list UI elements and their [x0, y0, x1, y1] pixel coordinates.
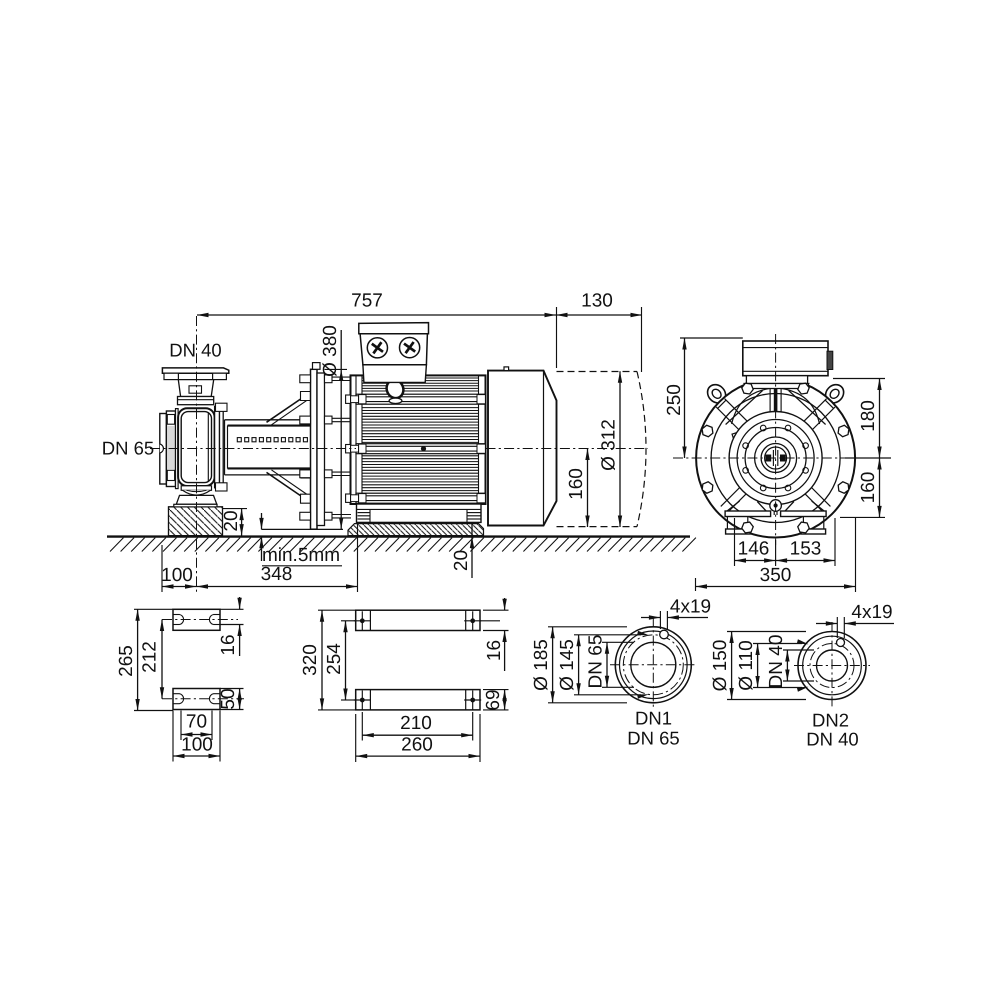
svg-text:130: 130 [581, 291, 613, 312]
svg-text:757: 757 [351, 291, 383, 312]
svg-text:Ø 150: Ø 150 [710, 640, 731, 692]
svg-text:260: 260 [401, 735, 433, 756]
svg-text:DN1: DN1 [635, 708, 672, 729]
svg-text:153: 153 [790, 539, 822, 560]
svg-text:348: 348 [261, 564, 293, 585]
svg-text:100: 100 [181, 735, 213, 756]
svg-text:DN 40: DN 40 [766, 635, 787, 689]
svg-text:70: 70 [186, 712, 207, 733]
svg-text:254: 254 [324, 643, 345, 675]
svg-text:Ø 110: Ø 110 [736, 640, 757, 690]
svg-text:16: 16 [218, 634, 239, 655]
svg-text:Ø 380: Ø 380 [320, 325, 341, 377]
svg-text:DN2: DN2 [812, 710, 849, 731]
svg-text:DN 40: DN 40 [806, 729, 858, 750]
svg-text:350: 350 [760, 565, 792, 586]
svg-text:DN 65: DN 65 [627, 728, 679, 749]
svg-text:Ø 145: Ø 145 [557, 639, 578, 691]
svg-text:146: 146 [738, 539, 770, 560]
svg-text:Ø 185: Ø 185 [531, 639, 552, 691]
svg-text:20: 20 [451, 550, 472, 571]
svg-text:DN 40: DN 40 [169, 340, 221, 361]
svg-text:69: 69 [483, 689, 504, 710]
svg-text:212: 212 [140, 641, 161, 673]
svg-text:min.5mm: min.5mm [262, 545, 340, 566]
svg-text:50: 50 [218, 688, 239, 709]
svg-text:265: 265 [116, 645, 137, 677]
svg-text:160: 160 [566, 468, 587, 500]
svg-text:Ø 312: Ø 312 [599, 419, 620, 471]
svg-text:DN 65: DN 65 [102, 438, 154, 459]
svg-text:4x19: 4x19 [851, 602, 892, 623]
svg-text:180: 180 [858, 400, 879, 432]
svg-text:20: 20 [221, 510, 242, 531]
svg-text:16: 16 [484, 640, 505, 661]
svg-text:250: 250 [664, 384, 685, 416]
svg-text:320: 320 [300, 644, 321, 676]
svg-text:4x19: 4x19 [670, 597, 711, 618]
svg-text:DN 65: DN 65 [586, 635, 607, 689]
svg-text:160: 160 [858, 472, 879, 504]
svg-text:210: 210 [400, 713, 432, 734]
svg-text:100: 100 [161, 565, 193, 586]
